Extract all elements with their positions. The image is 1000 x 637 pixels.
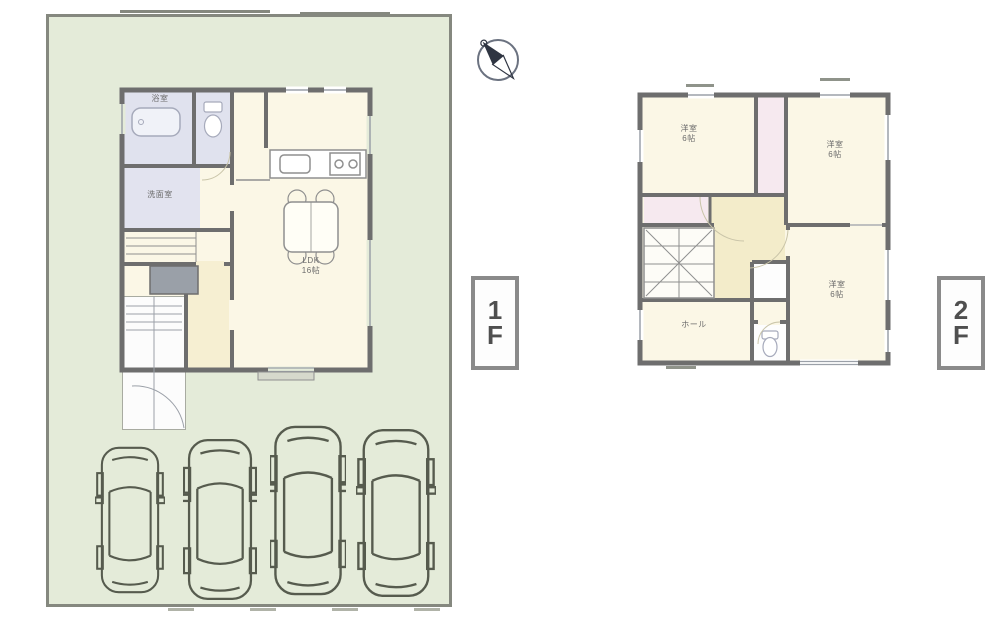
parking-area [95, 427, 435, 599]
bathtub [132, 108, 180, 136]
outdoor-step [258, 372, 314, 380]
washroom-label: 洗面室 [128, 190, 192, 200]
floor-tag-1f: 1 F [471, 276, 519, 370]
floor-tag-2f: 2 F [937, 276, 985, 370]
room-ne-size: 6帖 [812, 150, 858, 160]
entrance-step-box [150, 266, 198, 294]
room-se-label: 洋室 6帖 [814, 280, 860, 300]
room-se-title: 洋室 [814, 280, 860, 290]
room-nw-size: 6帖 [666, 134, 712, 144]
ldk-title: LDK [288, 256, 334, 266]
room-ne-title: 洋室 [812, 140, 858, 150]
toilet-fixture-1f [204, 102, 222, 137]
floor-tag-1f-letter: F [487, 323, 503, 348]
toilet-fixture-2f [762, 331, 778, 357]
room-nw-title: 洋室 [666, 124, 712, 134]
north-arrow-icon [477, 36, 519, 83]
room-se-size: 6帖 [814, 290, 860, 300]
ldk-size: 16帖 [288, 266, 334, 276]
car-3 [268, 427, 348, 594]
car-1 [95, 448, 164, 592]
room-nw-label: 洋室 6帖 [666, 124, 712, 144]
hall-label: ホール [662, 320, 726, 330]
dining-table [284, 190, 338, 264]
car-4 [356, 430, 436, 596]
stairs-1f [126, 232, 196, 262]
car-2 [182, 440, 258, 599]
kitchen-counter [236, 150, 366, 180]
room-ne-label: 洋室 6帖 [812, 140, 858, 160]
floor-plan-sheet: 浴室 洗面室 LDK 16帖 洋室 6帖 洋室 6帖 洋室 6帖 ホール 1 F… [0, 0, 1000, 637]
entrance-steps [126, 296, 184, 430]
door-swing-arc [132, 386, 184, 428]
ldk-label: LDK 16帖 [288, 256, 334, 276]
bath-label: 浴室 [138, 94, 182, 104]
stairs-2f [644, 228, 714, 298]
floor-tag-2f-letter: F [953, 323, 969, 348]
